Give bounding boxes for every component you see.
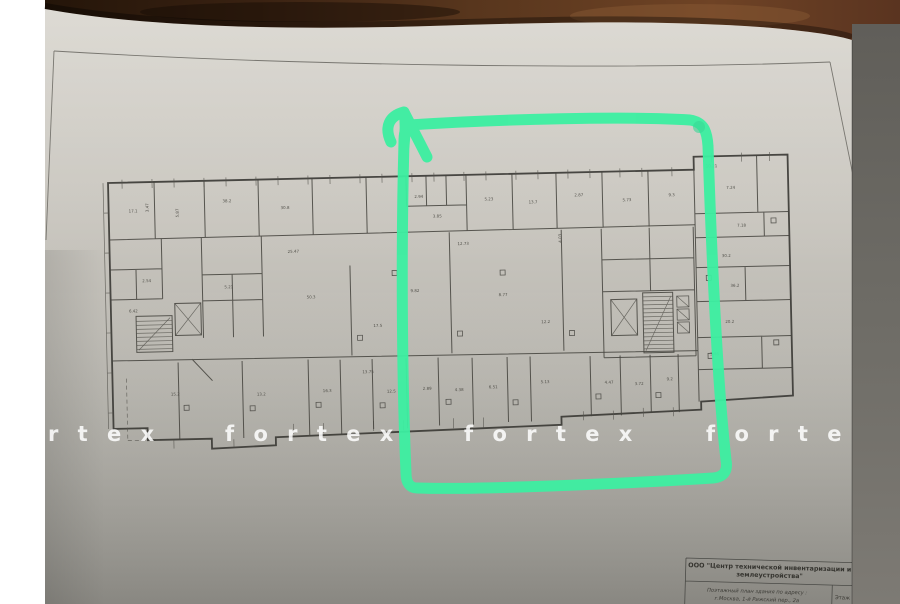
dimension-label: 5.23 (484, 196, 493, 201)
dimension-label: 8.77 (499, 292, 508, 297)
dimension-label: 12.5 (387, 389, 396, 394)
dimension-label: 3.47 (144, 203, 149, 212)
dimension-label: 50.3 (307, 294, 316, 299)
dimension-label: 7.24 (726, 185, 735, 190)
image-white-margin (0, 0, 45, 604)
dimension-label: 38.2 (222, 198, 231, 203)
title-block-floor-label: Этаж (835, 595, 850, 601)
dimension-label: 13.7 (528, 199, 537, 204)
dimension-label: 15.2 (171, 391, 180, 396)
dimension-label: 9.3 (668, 192, 675, 197)
dimension-label: 6.51 (489, 384, 498, 389)
dimension-label: 2.54 (142, 278, 151, 283)
dimension-label: 5.13 (541, 379, 550, 384)
paper-sheet (45, 9, 852, 604)
dimension-label: 20.2 (725, 319, 734, 324)
watermark-segment: f o r t e x (225, 422, 399, 446)
dimension-label: 5.73 (622, 197, 631, 202)
dimension-label: 4.38 (455, 387, 464, 392)
dimension-label: 5.21 (224, 284, 233, 289)
dimension-label: 7.18 (737, 223, 746, 228)
photo: 17.13.475.8738.230.82.943.855.2313.72.87… (0, 0, 900, 604)
dimension-label: 17.5 (373, 323, 382, 328)
dimension-label: 25.47 (288, 249, 300, 254)
dimension-label: 13.2 (257, 391, 266, 396)
dimension-label: 3.85 (433, 213, 442, 218)
dimension-label: 30.2 (722, 253, 731, 258)
photo-of-floor-plan-document: 17.13.475.8738.230.82.943.855.2313.72.87… (0, 0, 900, 604)
dimension-label: 16.3 (323, 388, 332, 393)
dimension-label: 2.89 (423, 386, 432, 391)
dimension-label: 2.94 (414, 194, 423, 199)
dimension-label: 36.2 (730, 283, 739, 288)
dimension-label: 5.87 (175, 208, 180, 217)
dimension-label: 6.42 (129, 308, 138, 313)
marker-corner-blob (693, 121, 705, 133)
dimension-label: 13.75 (362, 369, 374, 374)
photo-side-strip (852, 24, 900, 604)
dimension-label: 17.1 (129, 208, 138, 213)
dimension-label: 3.72 (635, 381, 644, 386)
dimension-label: 12.2 (541, 319, 550, 324)
dimension-label: 4.47 (605, 380, 614, 385)
dimension-label: 9.2 (667, 376, 674, 381)
dimension-label: 9.82 (410, 288, 419, 293)
watermark-segment: r t e x (48, 422, 160, 446)
dimension-label: 4.03 (557, 233, 562, 242)
dimension-label: 30.8 (281, 205, 290, 210)
dimension-label: 12.73 (457, 241, 469, 246)
dimension-label: 2.87 (574, 192, 583, 197)
watermark-segment: f o r t e x (464, 422, 638, 446)
